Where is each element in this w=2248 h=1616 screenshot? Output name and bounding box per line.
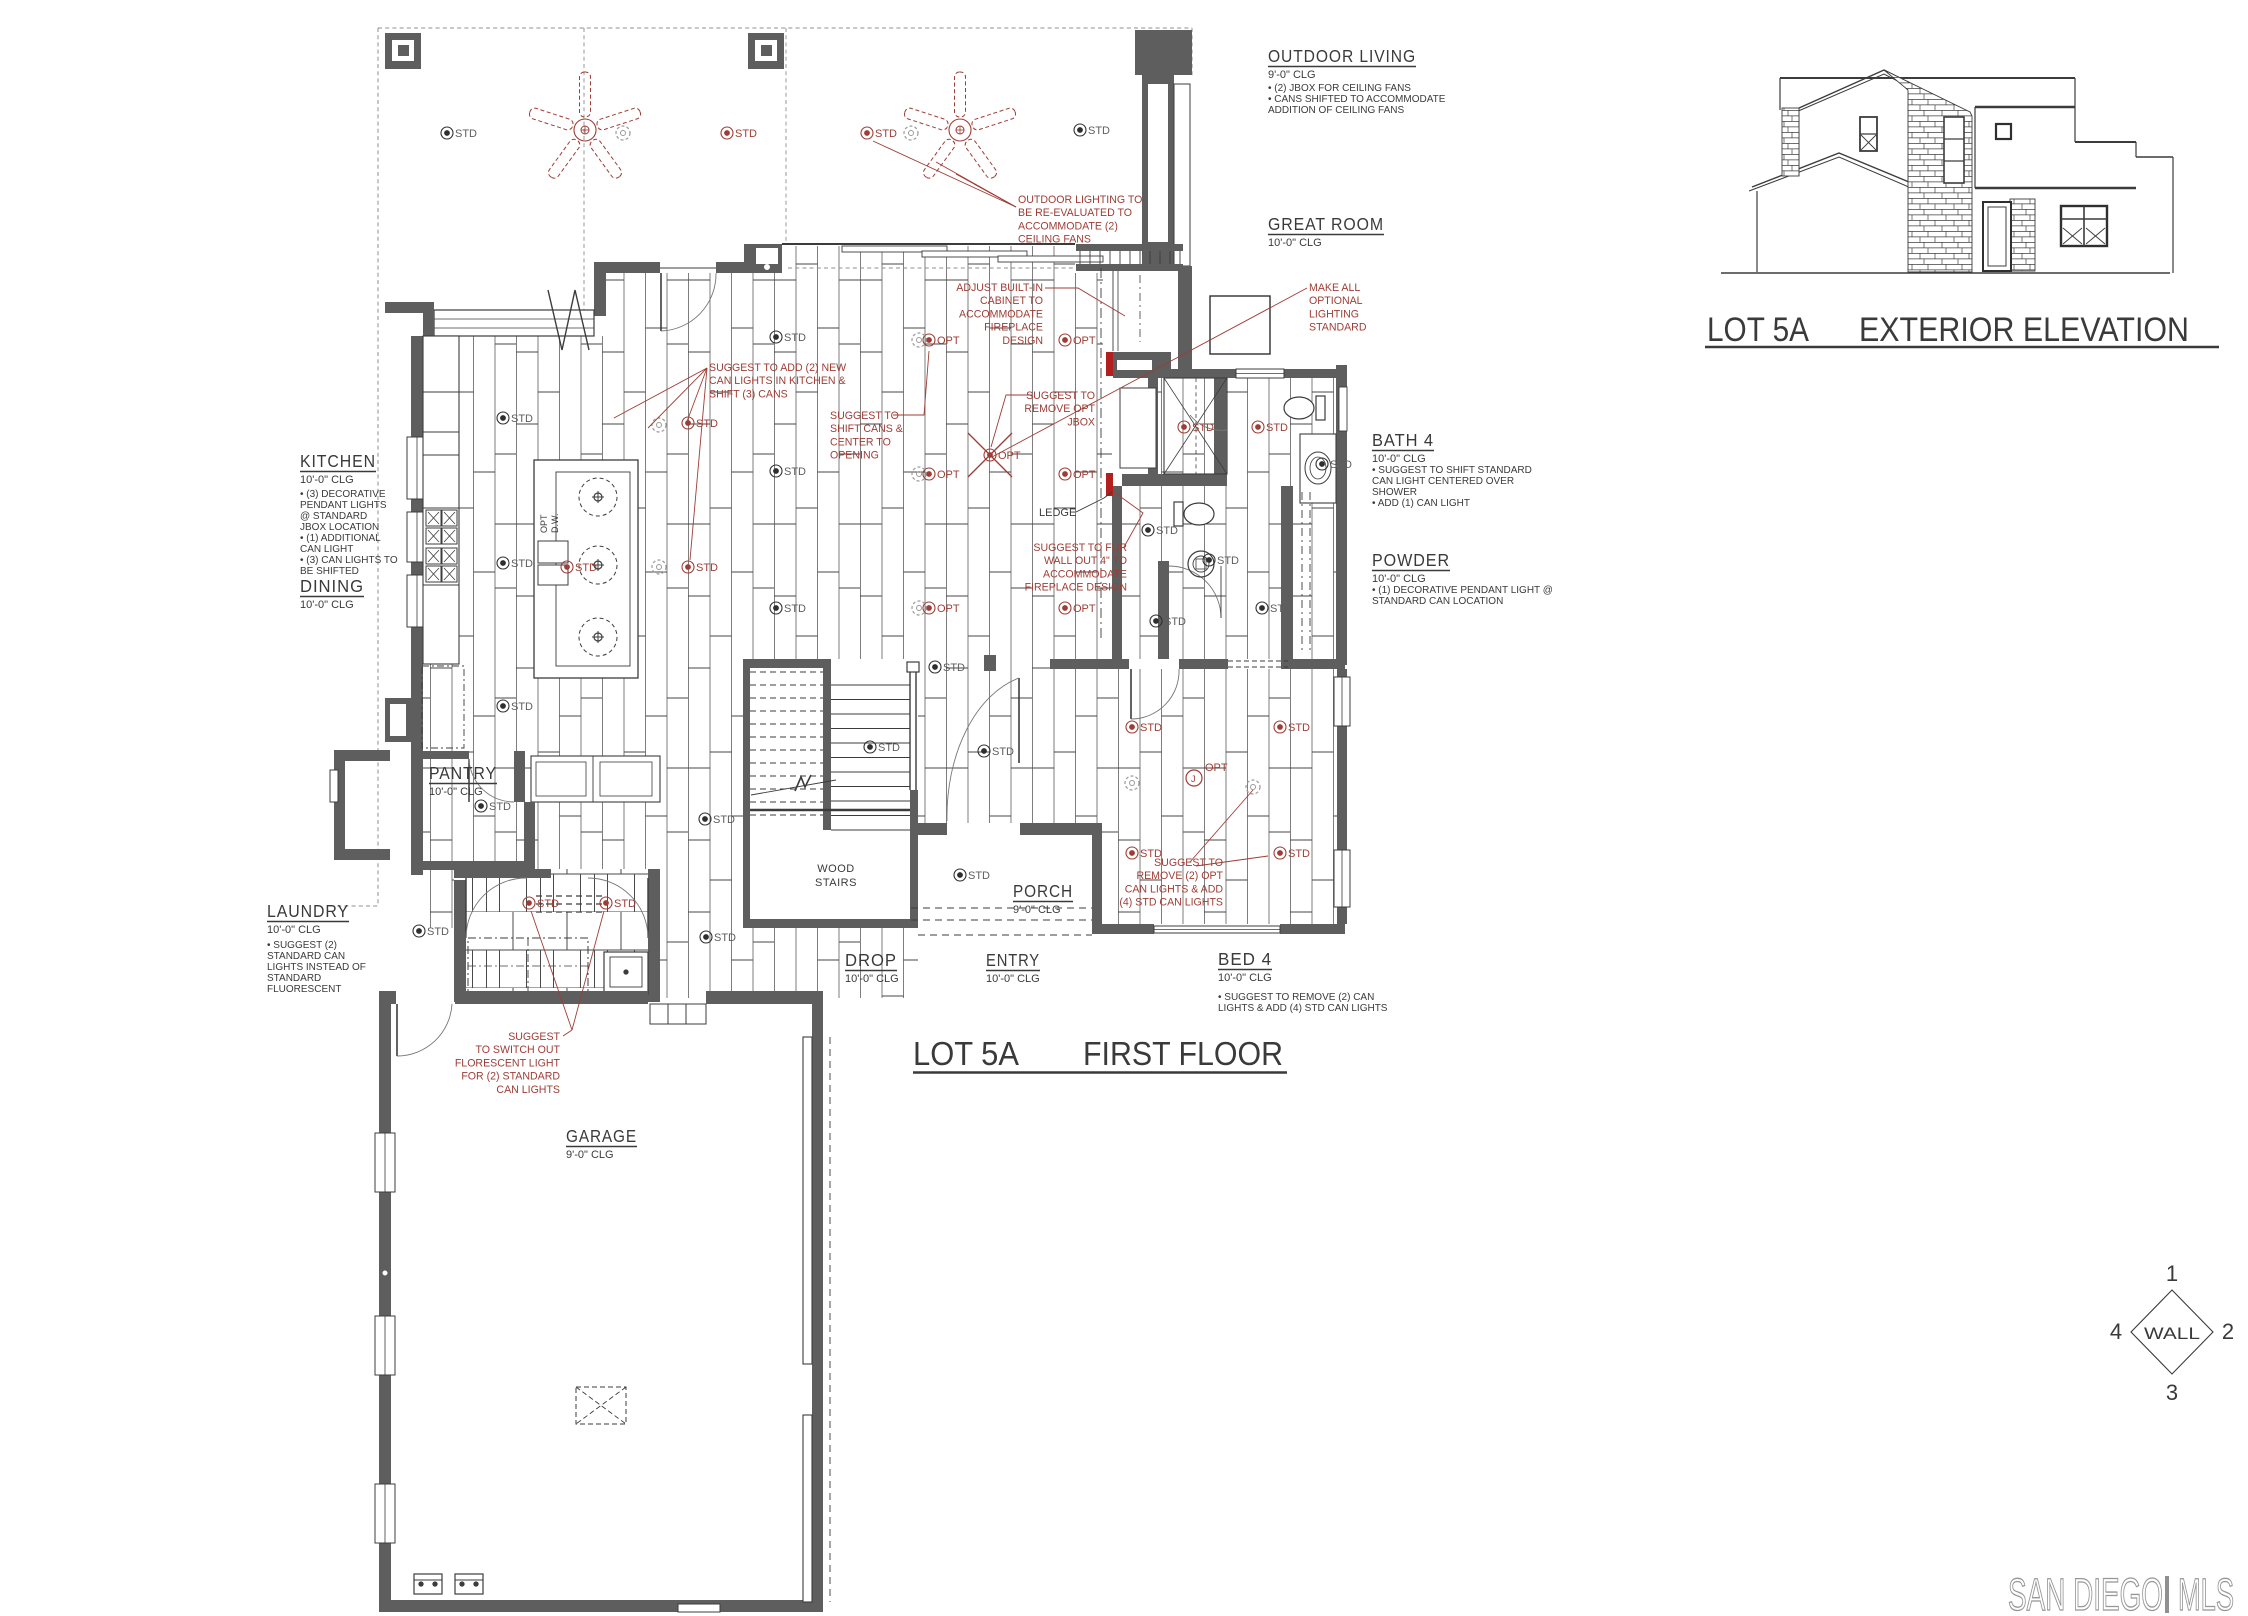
svg-text:• (1) DECORATIVE PENDANT LIGHT: • (1) DECORATIVE PENDANT LIGHT @ xyxy=(1372,585,1553,596)
svg-text:• SUGGEST (2): • SUGGEST (2) xyxy=(267,940,337,951)
svg-text:LEDGE: LEDGE xyxy=(1039,507,1076,519)
svg-text:STD: STD xyxy=(1217,555,1239,567)
svg-text:CAN LIGHT: CAN LIGHT xyxy=(300,544,353,555)
svg-text:REMOVE OPT: REMOVE OPT xyxy=(1024,403,1095,415)
svg-text:10'-0" CLG: 10'-0" CLG xyxy=(300,599,354,611)
svg-text:POWDER: POWDER xyxy=(1372,550,1450,570)
svg-text:4: 4 xyxy=(2110,1319,2122,1344)
svg-text:FLORESCENT LIGHT: FLORESCENT LIGHT xyxy=(455,1057,561,1069)
svg-text:CAN LIGHTS IN KITCHEN &: CAN LIGHTS IN KITCHEN & xyxy=(709,375,846,387)
svg-text:SUGGEST TO ADD (2) NEW: SUGGEST TO ADD (2) NEW xyxy=(709,362,846,374)
svg-text:OPT: OPT xyxy=(937,469,960,481)
svg-text:GARAGE: GARAGE xyxy=(566,1126,637,1146)
svg-text:STANDARD CAN: STANDARD CAN xyxy=(267,951,345,962)
svg-text:SHIFT (3) CANS: SHIFT (3) CANS xyxy=(709,388,788,400)
svg-text:STD: STD xyxy=(537,898,559,910)
svg-text:1: 1 xyxy=(2166,1261,2178,1286)
svg-text:STANDARD CAN LOCATION: STANDARD CAN LOCATION xyxy=(1372,596,1503,607)
svg-text:OPT: OPT xyxy=(937,603,960,615)
svg-text:STD: STD xyxy=(968,870,990,882)
svg-text:PORCH: PORCH xyxy=(1013,881,1073,901)
svg-text:FIREPLACE: FIREPLACE xyxy=(984,322,1043,334)
svg-text:9'-0" CLG: 9'-0" CLG xyxy=(1013,904,1061,916)
svg-text:STD: STD xyxy=(489,801,511,813)
svg-text:LIGHTING: LIGHTING xyxy=(1309,308,1359,320)
svg-text:TO SWITCH OUT: TO SWITCH OUT xyxy=(475,1044,560,1056)
svg-text:BED 4: BED 4 xyxy=(1218,949,1272,969)
svg-text:STANDARD: STANDARD xyxy=(267,973,321,984)
svg-text:STD: STD xyxy=(714,932,736,944)
svg-text:SUGGEST TO: SUGGEST TO xyxy=(1026,390,1095,402)
svg-text:9'-0" CLG: 9'-0" CLG xyxy=(1268,69,1316,81)
svg-text:10'-0" CLG: 10'-0" CLG xyxy=(1372,453,1426,465)
svg-text:• (1) ADDITIONAL: • (1) ADDITIONAL xyxy=(300,533,381,544)
svg-text:OUTDOOR LIVING: OUTDOOR LIVING xyxy=(1268,46,1416,66)
svg-text:WALL: WALL xyxy=(2144,1324,2200,1343)
svg-text:ACCOMMODATE: ACCOMMODATE xyxy=(1043,568,1127,580)
svg-text:10'-0" CLG: 10'-0" CLG xyxy=(1372,573,1426,585)
svg-text:SUGGEST TO: SUGGEST TO xyxy=(1154,857,1223,869)
svg-text:STD: STD xyxy=(1088,125,1110,137)
svg-text:STD: STD xyxy=(1270,603,1292,615)
svg-text:9'-0" CLG: 9'-0" CLG xyxy=(566,1149,614,1161)
svg-text:STD: STD xyxy=(1156,525,1178,537)
svg-text:DROP: DROP xyxy=(845,950,897,970)
svg-text:ADDITION OF CEILING FANS: ADDITION OF CEILING FANS xyxy=(1268,105,1404,116)
svg-text:STD: STD xyxy=(1140,722,1162,734)
svg-text:STD: STD xyxy=(575,562,597,574)
svg-text:SUGGEST: SUGGEST xyxy=(508,1031,560,1043)
svg-text:10'-0" CLG: 10'-0" CLG xyxy=(1218,972,1272,984)
svg-text:10'-0" CLG: 10'-0" CLG xyxy=(429,786,483,798)
svg-text:OPT: OPT xyxy=(1073,603,1096,615)
svg-text:STD: STD xyxy=(784,332,806,344)
svg-text:STD: STD xyxy=(1288,848,1310,860)
svg-text:STAIRS: STAIRS xyxy=(815,877,857,889)
svg-text:FIRST FLOOR: FIRST FLOOR xyxy=(1083,1035,1283,1072)
svg-text:LAUNDRY: LAUNDRY xyxy=(267,901,349,921)
svg-text:JBOX: JBOX xyxy=(1067,416,1095,428)
svg-text:LOT 5A: LOT 5A xyxy=(913,1035,1019,1072)
svg-text:SUGGEST TO FUR: SUGGEST TO FUR xyxy=(1033,542,1127,554)
svg-text:WALL OUT 4" TO: WALL OUT 4" TO xyxy=(1044,555,1127,567)
svg-text:STD: STD xyxy=(455,128,477,140)
svg-text:OPT: OPT xyxy=(1073,469,1096,481)
svg-text:OPT: OPT xyxy=(1205,762,1228,774)
svg-text:10'-0" CLG: 10'-0" CLG xyxy=(300,474,354,486)
svg-text:CAN LIGHT CENTERED OVER: CAN LIGHT CENTERED OVER xyxy=(1372,476,1514,487)
svg-text:ADJUST BUILT-IN: ADJUST BUILT-IN xyxy=(956,282,1043,294)
svg-text:OPT: OPT xyxy=(937,335,960,347)
svg-text:WOOD: WOOD xyxy=(817,863,854,875)
svg-text:• SUGGEST TO SHIFT STANDARD: • SUGGEST TO SHIFT STANDARD xyxy=(1372,465,1532,476)
svg-text:(4) STD CAN LIGHTS: (4) STD CAN LIGHTS xyxy=(1119,897,1223,909)
svg-text:STD: STD xyxy=(511,558,533,570)
svg-text:STD: STD xyxy=(784,466,806,478)
svg-text:FIREPLACE DESIGN: FIREPLACE DESIGN xyxy=(1025,582,1127,594)
svg-text:STD: STD xyxy=(1192,422,1214,434)
svg-text:STD: STD xyxy=(943,662,965,674)
svg-text:STD: STD xyxy=(1330,459,1352,471)
svg-text:@ STANDARD: @ STANDARD xyxy=(300,511,367,522)
svg-text:CENTER TO: CENTER TO xyxy=(830,436,891,448)
svg-text:DINING: DINING xyxy=(300,576,364,596)
svg-text:SAN DIEGO: SAN DIEGO xyxy=(2008,1569,2163,1616)
svg-text:MAKE ALL: MAKE ALL xyxy=(1309,282,1360,294)
svg-text:ACCOMMODATE: ACCOMMODATE xyxy=(959,308,1043,320)
svg-text:STD: STD xyxy=(614,898,636,910)
svg-text:OPENING: OPENING xyxy=(830,450,879,462)
svg-text:KITCHEN: KITCHEN xyxy=(300,451,376,471)
svg-text:STD: STD xyxy=(713,814,735,826)
svg-text:OPT: OPT xyxy=(539,514,549,533)
svg-text:J: J xyxy=(1191,774,1196,784)
svg-text:PENDANT LIGHTS: PENDANT LIGHTS xyxy=(300,500,387,511)
svg-text:STD: STD xyxy=(696,418,718,430)
svg-text:OPTIONAL: OPTIONAL xyxy=(1309,295,1363,307)
svg-text:STD: STD xyxy=(992,746,1014,758)
svg-text:LOT 5A: LOT 5A xyxy=(1707,311,1809,349)
svg-text:SUGGEST TO: SUGGEST TO xyxy=(830,410,899,422)
svg-text:DESIGN: DESIGN xyxy=(1002,335,1043,347)
svg-text:• CANS SHIFTED TO ACCOMMODATE: • CANS SHIFTED TO ACCOMMODATE xyxy=(1268,94,1446,105)
svg-text:STD: STD xyxy=(875,128,897,140)
svg-text:10'-0" CLG: 10'-0" CLG xyxy=(986,973,1040,985)
svg-text:SHOWER: SHOWER xyxy=(1372,487,1417,498)
svg-text:STD: STD xyxy=(1266,422,1288,434)
svg-text:STD: STD xyxy=(784,603,806,615)
svg-text:FLUORESCENT: FLUORESCENT xyxy=(267,984,341,995)
svg-text:STD: STD xyxy=(735,128,757,140)
svg-text:LIGHTS & ADD (4) STD CAN LIGHT: LIGHTS & ADD (4) STD CAN LIGHTS xyxy=(1218,1003,1388,1014)
svg-text:STD: STD xyxy=(511,413,533,425)
svg-text:REMOVE (2) OPT: REMOVE (2) OPT xyxy=(1136,870,1223,882)
svg-text:10'-0" CLG: 10'-0" CLG xyxy=(267,924,321,936)
svg-text:STANDARD: STANDARD xyxy=(1309,322,1367,334)
svg-text:D.W.: D.W. xyxy=(550,514,560,534)
svg-text:OUTDOOR LIGHTING TO: OUTDOOR LIGHTING TO xyxy=(1018,194,1142,206)
svg-text:ACCOMMODATE (2): ACCOMMODATE (2) xyxy=(1018,220,1118,232)
svg-text:OPT: OPT xyxy=(1073,335,1096,347)
svg-text:MLS: MLS xyxy=(2178,1569,2234,1616)
svg-text:• (3) CAN LIGHTS TO: • (3) CAN LIGHTS TO xyxy=(300,555,398,566)
svg-text:SHIFT CANS &: SHIFT CANS & xyxy=(830,423,903,435)
svg-text:CEILING FANS: CEILING FANS xyxy=(1018,234,1091,246)
svg-text:CAN LIGHTS: CAN LIGHTS xyxy=(496,1084,560,1096)
svg-text:2: 2 xyxy=(2222,1319,2234,1344)
svg-text:PANTRY: PANTRY xyxy=(429,763,497,783)
svg-text:BE RE-EVALUATED TO: BE RE-EVALUATED TO xyxy=(1018,207,1132,219)
svg-text:STD: STD xyxy=(511,701,533,713)
svg-text:ENTRY: ENTRY xyxy=(986,950,1040,970)
svg-text:FOR (2) STANDARD: FOR (2) STANDARD xyxy=(461,1071,560,1083)
svg-text:CABINET TO: CABINET TO xyxy=(980,295,1043,307)
svg-text:• (2) JBOX FOR CEILING FANS: • (2) JBOX FOR CEILING FANS xyxy=(1268,83,1411,94)
svg-text:STD: STD xyxy=(1164,616,1186,628)
svg-text:10'-0" CLG: 10'-0" CLG xyxy=(845,973,899,985)
svg-text:EXTERIOR ELEVATION: EXTERIOR ELEVATION xyxy=(1859,311,2189,349)
svg-text:10'-0" CLG: 10'-0" CLG xyxy=(1268,237,1322,249)
svg-text:JBOX LOCATION: JBOX LOCATION xyxy=(300,522,379,533)
svg-text:BATH 4: BATH 4 xyxy=(1372,430,1434,450)
svg-text:LIGHTS INSTEAD OF: LIGHTS INSTEAD OF xyxy=(267,962,366,973)
svg-text:3: 3 xyxy=(2166,1380,2178,1405)
svg-text:CAN LIGHTS & ADD: CAN LIGHTS & ADD xyxy=(1125,883,1224,895)
svg-text:STD: STD xyxy=(1288,722,1310,734)
svg-text:• SUGGEST TO REMOVE (2) CAN: • SUGGEST TO REMOVE (2) CAN xyxy=(1218,992,1374,1003)
svg-text:GREAT ROOM: GREAT ROOM xyxy=(1268,214,1384,234)
svg-text:• (3) DECORATIVE: • (3) DECORATIVE xyxy=(300,489,386,500)
svg-text:STD: STD xyxy=(696,562,718,574)
svg-text:• ADD (1) CAN LIGHT: • ADD (1) CAN LIGHT xyxy=(1372,498,1470,509)
svg-text:STD: STD xyxy=(427,926,449,938)
svg-text:STD: STD xyxy=(878,742,900,754)
